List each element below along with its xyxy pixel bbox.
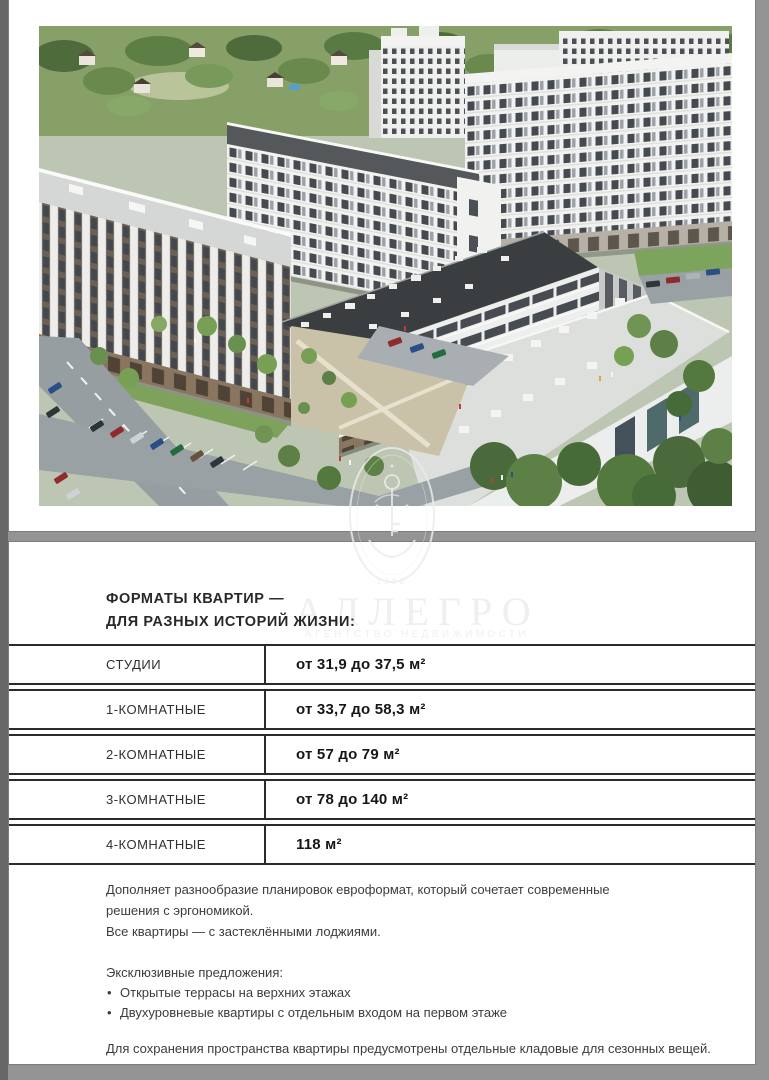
table-row: 1-КОМНАТНЫЕ от 33,7 до 58,3 м² <box>9 689 755 730</box>
description-line3: Все квартиры — с застеклёнными лоджиями. <box>106 921 755 942</box>
bullet-icon: • <box>107 1003 112 1023</box>
offer-text: Двухуровневые квартиры с отдельным входо… <box>120 1005 507 1020</box>
table-row: 3-КОМНАТНЫЕ от 78 до 140 м² <box>9 779 755 820</box>
apartment-formats-table: СТУДИИ от 31,9 до 37,5 м² 1-КОМНАТНЫЕ от… <box>9 644 755 865</box>
tall-tower <box>369 26 465 138</box>
building-render-image <box>39 26 732 506</box>
page-title: ФОРМАТЫ КВАРТИР — ДЛЯ РАЗНЫХ ИСТОРИЙ ЖИЗ… <box>106 588 755 634</box>
row-label: 1-КОМНАТНЫЕ <box>9 691 266 728</box>
building-render-illustration <box>39 26 732 506</box>
closing-paragraph: Для сохранения пространства квартиры пре… <box>106 1039 755 1059</box>
row-value: от 78 до 140 м² <box>266 781 755 818</box>
description-paragraph: Дополняет разнообразие планировок еврофо… <box>106 879 755 942</box>
table-row: 4-КОМНАТНЫЕ 118 м² <box>9 824 755 865</box>
offer-text: Открытые террасы на верхних этажах <box>120 985 351 1000</box>
description-line2: решения с эргономикой. <box>106 900 755 921</box>
bullet-icon: • <box>107 983 112 1003</box>
table-row: 2-КОМНАТНЫЕ от 57 до 79 м² <box>9 734 755 775</box>
row-label: СТУДИИ <box>9 646 266 683</box>
list-item: • Открытые террасы на верхних этажах <box>106 983 755 1003</box>
right-slab <box>465 53 732 267</box>
document-page: ФОРМАТЫ КВАРТИР — ДЛЯ РАЗНЫХ ИСТОРИЙ ЖИЗ… <box>0 0 769 1080</box>
description-line1: Дополняет разнообразие планировок еврофо… <box>106 879 755 900</box>
row-label: 4-КОМНАТНЫЕ <box>9 826 266 863</box>
list-item: • Двухуровневые квартиры с отдельным вхо… <box>106 1003 755 1023</box>
hero-panel <box>8 0 756 532</box>
exclusive-offers-block: Эксклюзивные предложения: • Открытые тер… <box>106 963 755 1023</box>
row-value: от 33,7 до 58,3 м² <box>266 691 755 728</box>
formats-panel: ФОРМАТЫ КВАРТИР — ДЛЯ РАЗНЫХ ИСТОРИЙ ЖИЗ… <box>8 541 756 1065</box>
row-value: 118 м² <box>266 826 755 863</box>
page-title-line1: ФОРМАТЫ КВАРТИР — <box>106 588 755 611</box>
row-label: 3-КОМНАТНЫЕ <box>9 781 266 818</box>
page-title-line2: ДЛЯ РАЗНЫХ ИСТОРИЙ ЖИЗНИ: <box>106 611 755 634</box>
table-row: СТУДИИ от 31,9 до 37,5 м² <box>9 644 755 685</box>
row-value: от 31,9 до 37,5 м² <box>266 646 755 683</box>
offers-title: Эксклюзивные предложения: <box>106 963 755 983</box>
left-gray-strip <box>0 0 8 1080</box>
row-value: от 57 до 79 м² <box>266 736 755 773</box>
row-label: 2-КОМНАТНЫЕ <box>9 736 266 773</box>
